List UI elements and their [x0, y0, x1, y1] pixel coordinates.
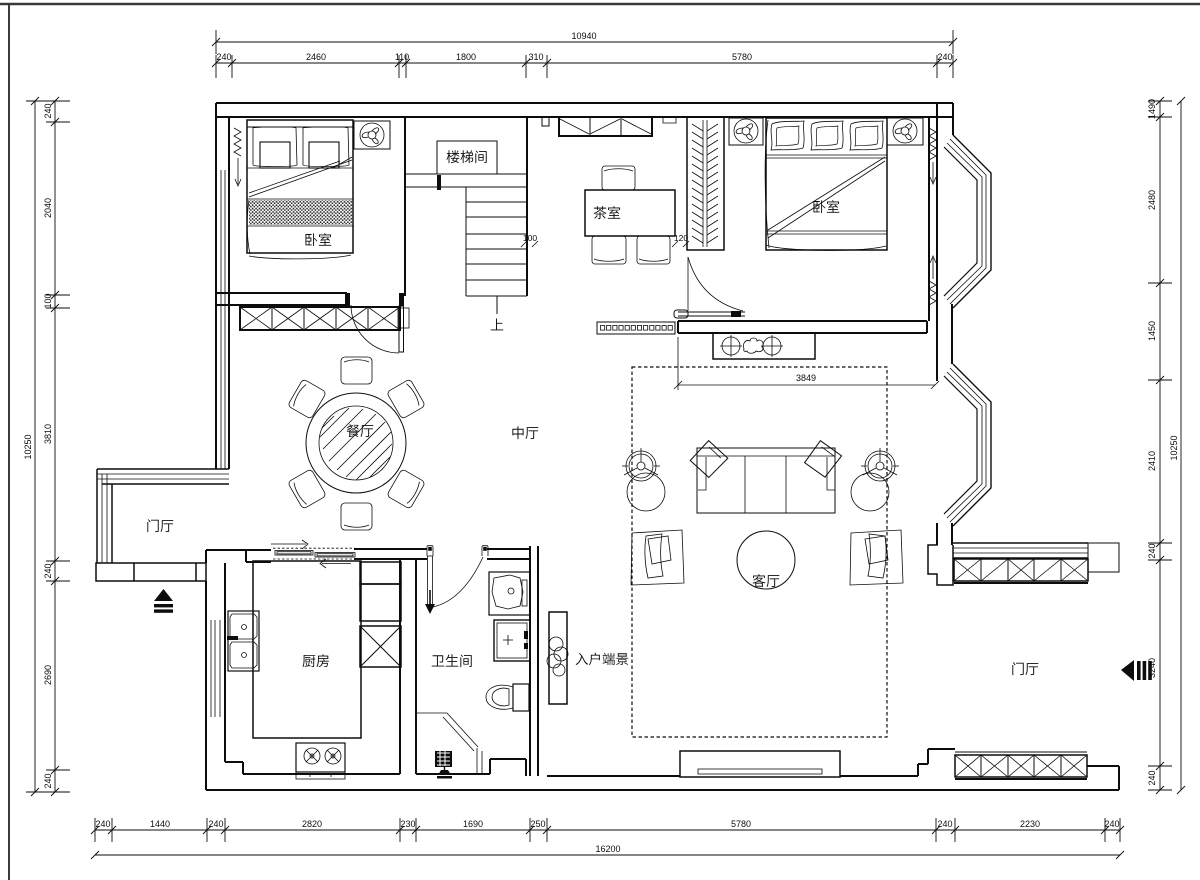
svg-text:10250: 10250 [1169, 435, 1179, 460]
svg-text:240: 240 [937, 819, 952, 829]
svg-text:240: 240 [43, 773, 53, 788]
svg-text:1800: 1800 [456, 52, 476, 62]
svg-text:2460: 2460 [306, 52, 326, 62]
svg-text:16200: 16200 [595, 844, 620, 854]
svg-text:240: 240 [43, 103, 53, 118]
svg-text:1690: 1690 [463, 819, 483, 829]
svg-text:240: 240 [1104, 819, 1119, 829]
svg-text:240: 240 [208, 819, 223, 829]
svg-text:240: 240 [95, 819, 110, 829]
svg-text:240: 240 [937, 52, 952, 62]
svg-text:240: 240 [1147, 770, 1157, 785]
svg-text:5780: 5780 [731, 819, 751, 829]
svg-text:240: 240 [43, 563, 53, 578]
svg-text:10940: 10940 [571, 31, 596, 41]
svg-text:1450: 1450 [1147, 321, 1157, 341]
svg-text:110: 110 [395, 52, 409, 62]
svg-text:1490: 1490 [1147, 99, 1157, 119]
svg-text:3849: 3849 [796, 373, 816, 383]
svg-text:120: 120 [674, 233, 688, 243]
svg-text:2230: 2230 [1020, 819, 1040, 829]
svg-text:1440: 1440 [150, 819, 170, 829]
svg-text:2040: 2040 [43, 198, 53, 218]
svg-text:250: 250 [530, 819, 545, 829]
svg-text:100: 100 [43, 293, 53, 308]
svg-text:240: 240 [216, 52, 231, 62]
svg-text:3810: 3810 [43, 424, 53, 444]
svg-text:10250: 10250 [23, 434, 33, 459]
svg-text:2820: 2820 [302, 819, 322, 829]
svg-text:230: 230 [400, 819, 415, 829]
svg-text:310: 310 [528, 52, 543, 62]
svg-text:2410: 2410 [1147, 451, 1157, 471]
svg-text:100: 100 [523, 233, 537, 243]
svg-text:2480: 2480 [1147, 190, 1157, 210]
svg-text:2690: 2690 [43, 665, 53, 685]
svg-text:240: 240 [1147, 543, 1157, 558]
svg-text:5780: 5780 [732, 52, 752, 62]
